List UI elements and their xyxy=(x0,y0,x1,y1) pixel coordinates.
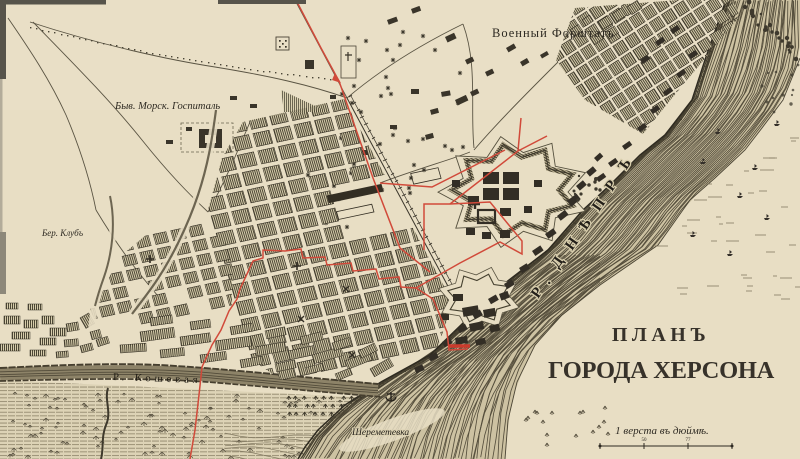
svg-text:1 верста въ дюймѣ.: 1 верста въ дюймѣ. xyxy=(615,425,709,437)
svg-text:Шереметевка: Шереметевка xyxy=(351,428,409,438)
svg-text:Бер. Клубъ: Бер. Клубъ xyxy=(41,228,83,238)
svg-text:77: 77 xyxy=(686,438,692,443)
svg-text:Военный Форштатъ: Военный Форштатъ xyxy=(492,26,615,40)
svg-text:ГОРОДА ХЕРСОНА: ГОРОДА ХЕРСОНА xyxy=(548,357,775,384)
svg-text:Быв. Морск. Госпиталь: Быв. Морск. Госпиталь xyxy=(114,101,220,112)
svg-text:50: 50 xyxy=(642,438,648,443)
svg-text:ПЛАНЪ: ПЛАНЪ xyxy=(612,324,710,346)
